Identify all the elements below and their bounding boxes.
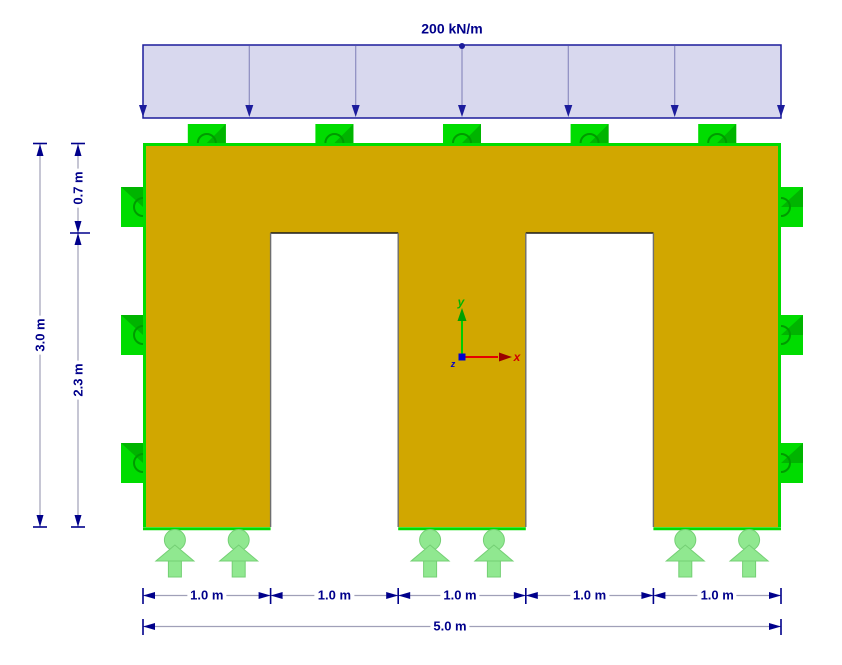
line-support-icon[interactable]	[121, 443, 143, 483]
dim-label-width-segment: 1.0 m	[315, 588, 354, 603]
nodal-support-icon[interactable]	[666, 530, 704, 578]
line-support-icon[interactable]	[188, 124, 226, 143]
nodal-support-icon[interactable]	[475, 530, 513, 578]
x-axis-label: x	[514, 351, 521, 363]
line-support-top-icons	[188, 124, 736, 143]
dim-label-width-segment: 1.0 m	[440, 588, 479, 603]
load-reference-dot	[459, 43, 465, 49]
nodal-support-icons	[156, 530, 768, 578]
dim-label-height-lower: 2.3 m	[71, 360, 86, 399]
line-support-icon[interactable]	[781, 187, 803, 227]
y-axis-label: y	[458, 296, 465, 308]
dim-label-height-upper: 0.7 m	[71, 168, 86, 207]
line-support-icon[interactable]	[781, 443, 803, 483]
origin-node	[459, 354, 466, 361]
nodal-support-icon[interactable]	[156, 530, 194, 578]
load-value-label: 200 kN/m	[418, 22, 485, 37]
dim-label-width-segment: 1.0 m	[570, 588, 609, 603]
line-support-icon[interactable]	[781, 315, 803, 355]
dim-label-height-total: 3.0 m	[33, 315, 48, 354]
line-support-icon[interactable]	[571, 124, 609, 143]
line-support-icon[interactable]	[698, 124, 736, 143]
line-support-right-icons	[781, 187, 803, 483]
nodal-support-icon[interactable]	[220, 530, 258, 578]
line-support-icon[interactable]	[315, 124, 353, 143]
dim-label-width-total: 5.0 m	[430, 619, 469, 634]
line-support-icon[interactable]	[443, 124, 481, 143]
distributed-load[interactable]	[139, 43, 785, 118]
model-viewport: 200 kN/m 3.0 m 0.7 m 2.3 m 1.0 m 1.0 m 1…	[0, 0, 842, 665]
model-graphics	[0, 0, 842, 665]
nodal-support-icon[interactable]	[730, 530, 768, 578]
z-axis-label: z	[451, 358, 456, 370]
dim-label-width-segment: 1.0 m	[187, 588, 226, 603]
dim-label-width-segment: 1.0 m	[698, 588, 737, 603]
line-support-icon[interactable]	[121, 187, 143, 227]
line-support-icon[interactable]	[121, 315, 143, 355]
line-support-left-icons	[121, 187, 143, 483]
nodal-support-icon[interactable]	[411, 530, 449, 578]
